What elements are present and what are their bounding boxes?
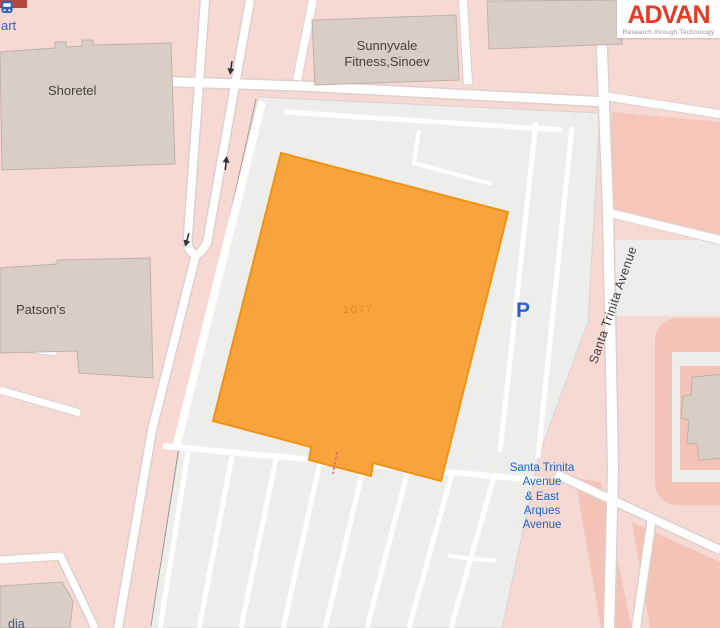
bus-stop-label-line: Santa Trinita <box>499 461 585 475</box>
sunnyvale-label: Sunnyvale Fitness,Sinoev <box>318 38 456 69</box>
bus-stop-label-line: Avenue <box>499 475 585 489</box>
advan-logo: ADVAN Research through Technology <box>617 0 720 38</box>
shoretel-label: Shoretel <box>48 83 96 98</box>
bus-stop-label-line: & East <box>499 490 585 504</box>
bus-stop-label-line: Arques <box>499 504 585 518</box>
bus-stop-label: Santa Trinita Avenue & East Arques Avenu… <box>499 461 585 532</box>
building-shoretel <box>0 40 175 170</box>
map-viewport[interactable]: art Shoretel Patson's Sunnyvale Fitness,… <box>0 0 720 628</box>
building-top-right <box>487 0 622 49</box>
bus-stop-label-line: Avenue <box>499 518 585 532</box>
partial-poi-label: art <box>1 18 16 33</box>
advan-logo-tagline: Research through Technology <box>623 29 715 36</box>
partial-label-bottom-left: dia <box>8 617 25 628</box>
patsons-label: Patson's <box>16 302 65 317</box>
building-number-label: 1077 <box>343 304 373 316</box>
sunnyvale-label-line2: Fitness,Sinoev <box>318 54 456 70</box>
sunnyvale-label-line1: Sunnyvale <box>318 38 456 54</box>
parking-symbol: P <box>516 299 530 323</box>
bus-stop-icon[interactable] <box>0 0 14 15</box>
advan-logo-text: ADVAN <box>627 3 709 28</box>
